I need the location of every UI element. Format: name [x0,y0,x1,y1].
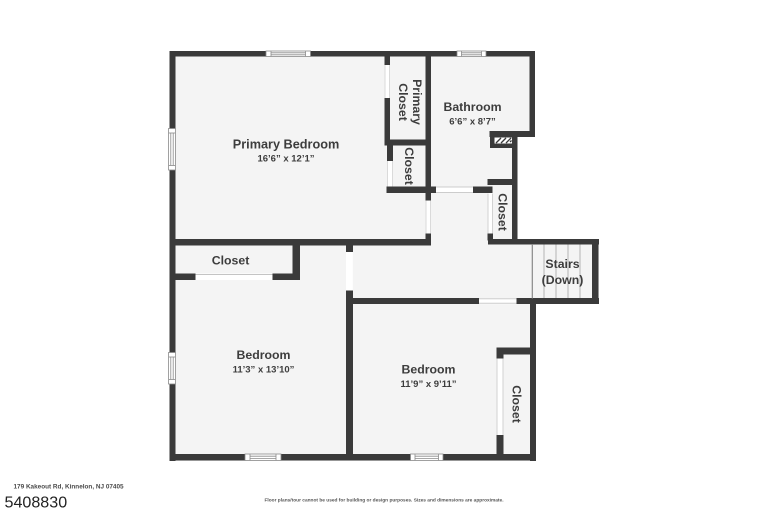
svg-text:PrimaryCloset: PrimaryCloset [396,79,424,125]
svg-text:Bathroom: Bathroom [443,100,501,114]
svg-text:Floor plans/tour cannot be use: Floor plans/tour cannot be used for buil… [264,498,503,504]
svg-text:179 Kakeout Rd, Kinnelon, NJ 0: 179 Kakeout Rd, Kinnelon, NJ 07405 [14,484,125,491]
svg-text:Closet: Closet [402,147,416,185]
svg-text:Stairs: Stairs [545,257,579,271]
svg-text:Closet: Closet [212,254,250,268]
svg-text:6’6” x 8’7”: 6’6” x 8’7” [449,117,496,128]
svg-text:(Down): (Down) [542,273,584,287]
svg-text:Closet: Closet [496,193,510,231]
svg-text:Bedroom: Bedroom [237,348,291,362]
svg-text:Primary Bedroom: Primary Bedroom [233,138,339,152]
svg-text:11’3” x 13’10”: 11’3” x 13’10” [233,365,295,376]
svg-text:Bedroom: Bedroom [402,363,456,377]
svg-text:Closet: Closet [510,385,524,423]
svg-text:11’9” x 9’11”: 11’9” x 9’11” [401,379,457,390]
svg-text:5408830: 5408830 [5,494,68,512]
svg-text:16’6” x 12’1”: 16’6” x 12’1” [257,154,314,165]
